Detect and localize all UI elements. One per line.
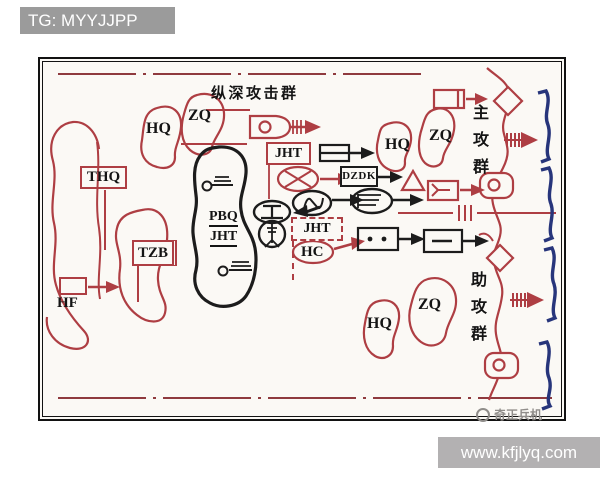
zq-label-assist: ZQ: [418, 297, 441, 313]
hf-box: [59, 277, 87, 295]
tzb-box: TZB: [132, 240, 177, 266]
watermark-site-bar: www.kfjlyq.com: [438, 437, 600, 468]
assist-attack-group-label: 助攻群: [469, 271, 485, 352]
hc-label: HC: [301, 245, 324, 260]
jht-top-box: JHT: [266, 142, 311, 165]
source-tag-banner: TG: MYYJJPP: [20, 7, 175, 34]
jht-dashed-box: JHT: [291, 217, 343, 241]
hq-label-assist: HQ: [367, 316, 392, 332]
hq-label-main: HQ: [385, 137, 410, 153]
deep-attack-group-label: 纵深攻击群: [211, 86, 299, 101]
zq-label-topleft: ZQ: [188, 108, 211, 124]
tactical-diagram-page: { "banner": { "text": "TG: MYYJJPP" }, "…: [0, 0, 600, 480]
dzdk-box: DZDK: [340, 166, 378, 187]
hf-label: HF: [57, 296, 78, 311]
jht-blob-label: JHT: [210, 230, 237, 247]
hq-label-topleft: HQ: [146, 121, 171, 137]
publisher-logo-text: 奇正兵机: [494, 406, 542, 423]
thq-box: THQ: [80, 166, 127, 189]
pbq-label: PBQ: [209, 210, 238, 227]
publisher-logo-icon: [476, 408, 490, 422]
publisher-logo: 奇正兵机: [476, 406, 542, 423]
zq-label-main: ZQ: [429, 128, 452, 144]
main-attack-group-label: 主攻群: [471, 104, 487, 185]
